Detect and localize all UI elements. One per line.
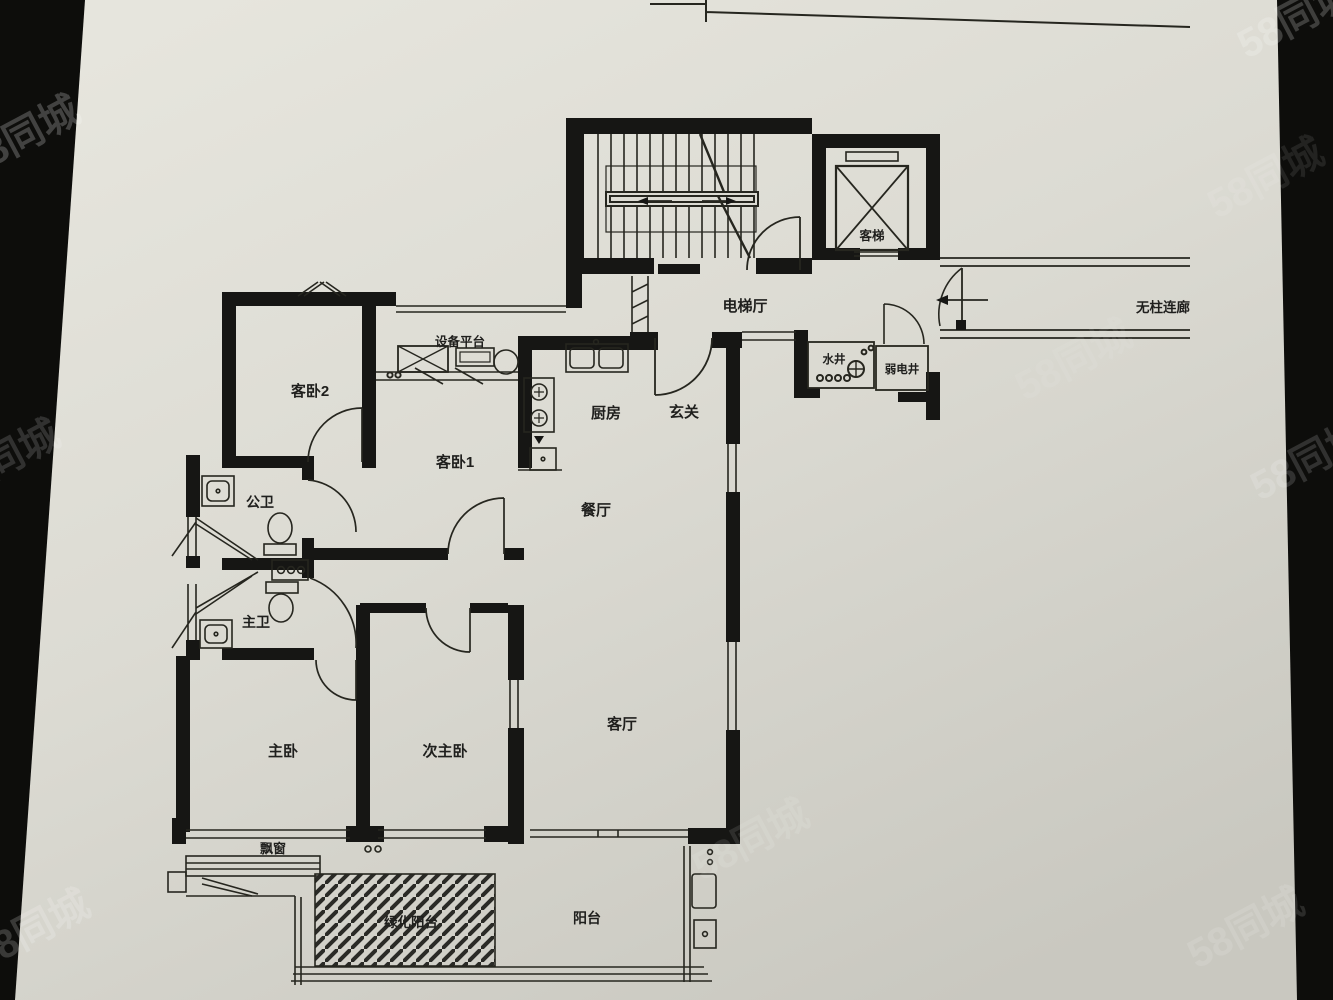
room-label-water-shaft: 水井 [823, 352, 846, 366]
room-label-kitchen: 厨房 [591, 404, 621, 422]
room-label-passenger-elevator: 客梯 [858, 228, 885, 243]
room-label-green-balcony: 绿化阳台 [384, 914, 438, 930]
room-label-dining-room: 餐厅 [581, 501, 611, 519]
room-label-elevator-hall: 电梯厅 [722, 297, 767, 315]
room-label-master-bathroom: 主卫 [242, 614, 270, 630]
room-label-guest-bedroom-2: 客卧2 [290, 382, 329, 400]
room-label-public-bathroom: 公卫 [246, 494, 274, 510]
stair-door-leaf [658, 264, 700, 274]
floor-plan-photo: 客卧2 客卧1 厨房 玄关 餐厅 客厅 主卧 次主卧 公卫 主卫 飘窗 绿化阳台… [0, 0, 1333, 1000]
room-label-weak-current-shaft: 弱电井 [885, 362, 920, 376]
room-label-balcony: 阳台 [573, 910, 601, 926]
room-label-second-master-bedroom: 次主卧 [422, 742, 467, 760]
room-label-entry-hall: 玄关 [669, 403, 699, 421]
floor-plan-svg: 客卧2 客卧1 厨房 玄关 餐厅 客厅 主卧 次主卧 公卫 主卫 飘窗 绿化阳台… [0, 0, 1333, 1000]
room-label-master-bedroom: 主卧 [268, 742, 298, 760]
room-label-guest-bedroom-1: 客卧1 [435, 453, 474, 471]
paper-sheet [15, 0, 1297, 1000]
room-label-equipment-platform: 设备平台 [435, 334, 485, 349]
room-label-living-room: 客厅 [606, 715, 637, 733]
room-label-bay-window: 飘窗 [260, 841, 286, 856]
room-label-covered-corridor: 无柱连廊 [1135, 299, 1190, 315]
